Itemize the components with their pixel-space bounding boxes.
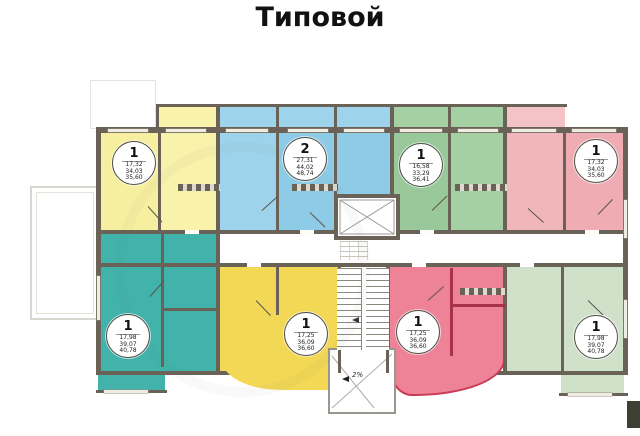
floorplan-page: Типовой bbox=[0, 0, 640, 436]
ramp-slope-label: 2% bbox=[352, 371, 363, 379]
apartment-top-green-room2 bbox=[450, 132, 505, 233]
stair-divider bbox=[361, 268, 366, 350]
area-total: 35,60 bbox=[113, 175, 155, 182]
wall bbox=[161, 233, 164, 367]
area-total: 48,74 bbox=[284, 171, 326, 178]
badge-bottom-right-green: 1 17,98 39,07 40,78 bbox=[574, 315, 618, 359]
wall bbox=[96, 263, 628, 267]
badge-bottom-yellow: 1 17,25 36,09 36,60 bbox=[284, 312, 328, 356]
door-opening bbox=[300, 230, 314, 234]
area-total: 40,78 bbox=[575, 349, 617, 356]
area-total: 40,78 bbox=[107, 348, 149, 355]
wall bbox=[448, 132, 451, 233]
wall bbox=[216, 104, 220, 233]
door-opening bbox=[412, 263, 426, 267]
room-count: 1 bbox=[584, 321, 607, 336]
room-count: 1 bbox=[409, 149, 432, 164]
wall bbox=[563, 127, 566, 233]
room-count: 1 bbox=[406, 316, 429, 331]
window bbox=[458, 129, 498, 132]
window bbox=[97, 276, 100, 320]
stair-direction-arrow bbox=[352, 317, 359, 323]
apartment-top-blue-room1 bbox=[218, 132, 278, 233]
badge-bottom-red-selected: 1 17,25 36,09 36,60 bbox=[396, 310, 440, 354]
window bbox=[104, 390, 148, 393]
window bbox=[512, 129, 556, 132]
watermark-artifact bbox=[627, 401, 640, 428]
apartment-bottom-green-balcony bbox=[561, 373, 624, 395]
apartment-top-pink-room1 bbox=[505, 132, 565, 233]
area-total: 36,41 bbox=[400, 177, 442, 184]
room-count: 1 bbox=[584, 145, 607, 160]
apartment-top-blue-room3 bbox=[336, 132, 392, 194]
door-opening bbox=[420, 230, 434, 234]
page-title: Типовой bbox=[0, 2, 640, 33]
window bbox=[568, 393, 612, 396]
window bbox=[226, 129, 268, 132]
wall bbox=[561, 267, 564, 373]
wall bbox=[276, 267, 279, 315]
area-total: 36,60 bbox=[397, 344, 439, 351]
window bbox=[166, 129, 206, 132]
elevator-x-icon bbox=[338, 198, 396, 236]
door-opening bbox=[520, 263, 534, 267]
kitchen-counter bbox=[455, 184, 507, 191]
wall bbox=[161, 308, 218, 311]
area-total: 36,60 bbox=[285, 346, 327, 353]
wall bbox=[623, 130, 628, 375]
badge-bottom-left-teal: 1 17,98 39,07 40,78 bbox=[106, 314, 150, 358]
staircase bbox=[337, 268, 389, 350]
apartment-top-left-yellow-room2 bbox=[160, 132, 218, 233]
window bbox=[344, 129, 384, 132]
kitchen-counter bbox=[292, 184, 338, 191]
window bbox=[572, 129, 616, 132]
window bbox=[288, 129, 328, 132]
window bbox=[400, 129, 442, 132]
room-count: 2 bbox=[293, 143, 316, 158]
room-count: 1 bbox=[116, 320, 139, 335]
badge-top-left-yellow: 1 17,32 34,03 35,60 bbox=[112, 141, 156, 185]
badge-top-blue: 2 27,31 44,02 48,74 bbox=[283, 137, 327, 181]
ramp-arrow-icon bbox=[342, 376, 349, 382]
wall bbox=[503, 104, 507, 233]
wall bbox=[450, 268, 453, 356]
elevator-shaft bbox=[334, 194, 400, 240]
wall bbox=[450, 304, 505, 307]
door-opening bbox=[585, 230, 599, 234]
kitchen-counter bbox=[178, 184, 220, 191]
door-opening bbox=[185, 230, 199, 234]
wall bbox=[503, 263, 507, 375]
window bbox=[624, 200, 627, 238]
apartment-bottom-yellow-bay bbox=[222, 352, 338, 390]
window bbox=[108, 129, 148, 132]
apartment-red-selected-bay bbox=[390, 352, 505, 396]
room-count: 1 bbox=[294, 318, 317, 333]
badge-top-right-pink: 1 17,32 34,03 35,60 bbox=[574, 139, 618, 183]
faint-structure-outline bbox=[90, 80, 156, 129]
area-total: 35,60 bbox=[575, 173, 617, 180]
kitchen-counter bbox=[460, 288, 505, 295]
balcony-inner-line bbox=[36, 192, 94, 314]
room-count: 1 bbox=[122, 147, 145, 162]
window bbox=[624, 300, 627, 338]
corridor-area-table bbox=[340, 241, 368, 260]
wall bbox=[276, 132, 279, 233]
balcony-outline-left bbox=[30, 186, 100, 320]
badge-top-green: 1 16,58 33,29 36,41 bbox=[399, 143, 443, 187]
door-opening bbox=[247, 263, 261, 267]
wall bbox=[96, 127, 101, 375]
wall bbox=[216, 230, 220, 375]
